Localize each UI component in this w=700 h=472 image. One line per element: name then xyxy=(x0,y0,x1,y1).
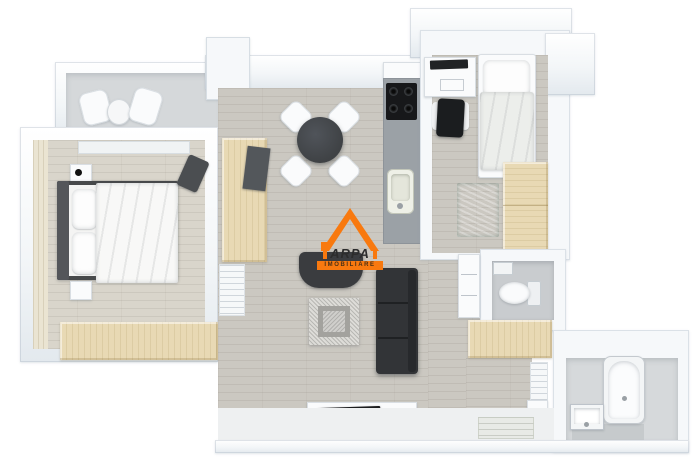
armchair xyxy=(299,252,363,288)
hall-radiator xyxy=(530,362,548,402)
monitor xyxy=(430,59,468,69)
bathroom-faucet xyxy=(584,422,589,427)
bedroom2-wardrobe xyxy=(503,162,548,251)
table-lamp xyxy=(75,169,82,176)
corridor-floor-2 xyxy=(466,358,532,413)
cabinet-seam xyxy=(461,295,477,296)
wc-corner-sink xyxy=(493,262,513,275)
bathtub-drain xyxy=(622,396,627,401)
burner-icon xyxy=(404,104,413,113)
bed-pillow-bottom xyxy=(72,232,97,274)
bedroom2-rug xyxy=(457,183,499,237)
sofa-cushion-seam xyxy=(378,337,408,339)
ceiling-light-panel xyxy=(78,141,190,154)
burner-icon xyxy=(389,104,398,113)
bedroom-bench xyxy=(60,322,218,360)
toilet-bowl xyxy=(499,282,530,304)
dining-table xyxy=(297,117,343,163)
living-radiator-column xyxy=(219,264,245,316)
burner-icon xyxy=(389,87,398,96)
cabinet-seam xyxy=(461,274,477,275)
burner-icon xyxy=(404,87,413,96)
floorplan-render: ARPA IMOBILIARE xyxy=(0,0,700,472)
single-bed-duvet xyxy=(480,92,534,170)
wardrobe-seam xyxy=(503,205,548,206)
bathroom-sink xyxy=(570,404,604,430)
master-bedroom-accent-wall xyxy=(33,140,48,349)
bottom-outer-wall xyxy=(215,440,689,453)
entry-door-mat xyxy=(478,417,534,439)
desk-chair xyxy=(436,98,465,137)
bathtub xyxy=(603,356,645,424)
ottoman-center xyxy=(323,311,345,332)
sofa-backrest xyxy=(408,270,416,372)
sofa-cushion-seam xyxy=(378,302,408,304)
cooktop xyxy=(386,83,417,120)
bathtub-basin xyxy=(608,361,640,419)
bed-pillow-top xyxy=(72,189,97,229)
bed-duvet xyxy=(96,183,178,283)
single-bed-pillow xyxy=(483,60,530,96)
nightstand-bottom xyxy=(70,281,92,300)
sofa xyxy=(376,268,418,374)
kitchen-sink-basin xyxy=(391,174,410,201)
hall-cabinet xyxy=(458,254,480,318)
kitchen-faucet xyxy=(397,203,403,209)
desk-drawer xyxy=(440,79,464,91)
ottoman xyxy=(309,298,359,345)
double-bed-headboard xyxy=(57,181,69,280)
hall-wood-cabinet xyxy=(468,320,552,358)
bedroom2-corner-block xyxy=(545,33,595,95)
